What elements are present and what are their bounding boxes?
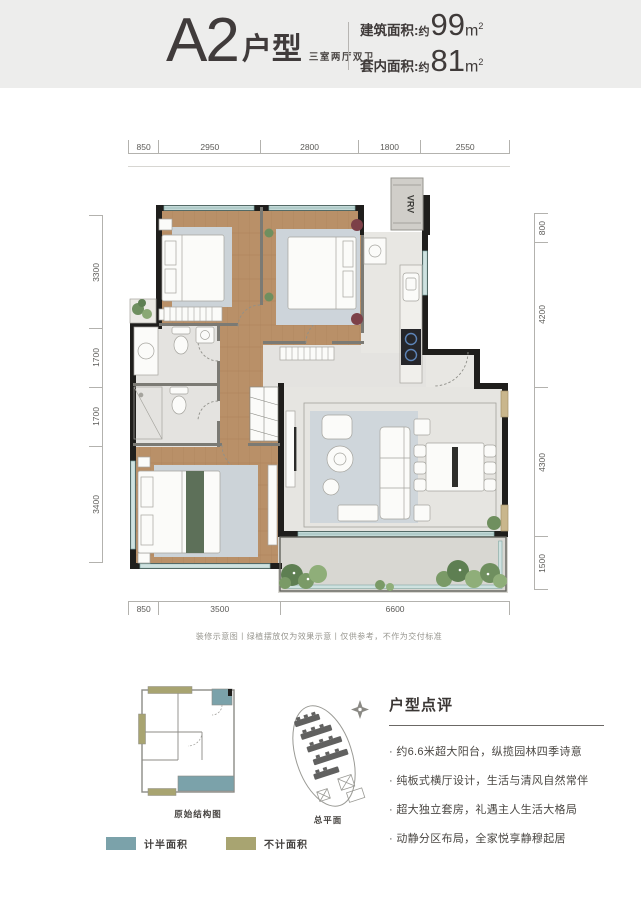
structural-diagram (106, 680, 290, 804)
review-bullets: · 约6.6米超大阳台，纵揽园林四季诗意 · 纯板式横厅设计，生活与清风自然常伴… (389, 738, 604, 854)
dim-label: 4200 (537, 305, 547, 324)
master-furniture (138, 457, 277, 563)
dim-label: 3300 (91, 263, 101, 282)
floorplan-page: A2 户型 三室两厅双卫 建筑面积: 约 99 m2 套内面积: 约 81 m2… (0, 0, 641, 920)
master-tv-console (268, 465, 277, 545)
excluded-area-left (139, 714, 146, 744)
vrv-closet: VRV (391, 178, 423, 230)
excluded-area-label: 不计面积 (264, 836, 308, 851)
master-side-window (131, 461, 135, 549)
flower-box-right-top (501, 391, 508, 417)
dim-label: 2800 (261, 142, 357, 152)
site-plan-label: 总平面 (276, 814, 380, 826)
dim-label: 2550 (421, 142, 509, 152)
dim-label: 1500 (537, 554, 547, 573)
dim-label: 1700 (91, 407, 101, 426)
built-area-row: 建筑面积: 约 99 m2 (360, 9, 483, 45)
coffee-table (327, 446, 353, 472)
dim-label: 800 (537, 221, 547, 235)
toilet-2 (172, 396, 186, 414)
built-area-label: 建筑面积: (360, 19, 419, 39)
dim-label: 850 (129, 142, 158, 152)
inner-area-row: 套内面积: 约 81 m2 (360, 45, 483, 81)
bedroom-2-furniture (265, 219, 364, 325)
dims-bottom: 850 3500 6600 (128, 601, 510, 615)
tv-console (286, 411, 295, 487)
review-bullet: · 动静分区布局，全家悦享静穆起居 (389, 825, 604, 854)
side-planter (130, 299, 156, 323)
disclaimer-text: 装修示意图丨绿植摆放仅为效果示意丨仅供参考，不作为交付标准 (78, 631, 560, 642)
dim-label: 1700 (91, 348, 101, 367)
inner-area-unit: m2 (465, 57, 483, 76)
half-area-balcony (178, 776, 234, 791)
legend-excluded-area: 不计面积 (226, 836, 308, 851)
plan-title: A2 户型 三室两厅双卫 (166, 12, 375, 69)
bench (338, 505, 378, 521)
fridge (364, 238, 386, 264)
legend: 计半面积 不计面积 (106, 836, 346, 851)
site-plan (276, 694, 380, 812)
armchair (322, 415, 352, 439)
inner-area-label: 套内面积: (360, 55, 419, 75)
dim-label: 1800 (359, 142, 421, 152)
dim-label: 2950 (159, 142, 260, 152)
kitchen-window (423, 251, 427, 295)
stove (401, 329, 421, 365)
compass-icon (351, 700, 369, 719)
sink-1 (196, 327, 214, 343)
floorplan-drawing: VRV (128, 175, 510, 595)
toilet-1 (174, 336, 188, 354)
plan-code-suffix: 户型 (242, 35, 302, 69)
excluded-area-top (148, 687, 192, 694)
dim-label: 3400 (91, 495, 101, 514)
wardrobe (250, 387, 278, 441)
built-area-approx: 约 (419, 23, 430, 39)
dim-label: 6600 (281, 604, 509, 614)
dims-top: 850 2950 2800 1800 2550 (128, 140, 510, 154)
sofa (380, 427, 410, 519)
review-section: 户型点评 · 约6.6米超大阳台，纵揽园林四季诗意 · 纯板式横厅设计，生活与清… (389, 694, 604, 854)
half-area-label: 计半面积 (144, 836, 188, 851)
half-area-swatch (106, 837, 136, 850)
entry-floor (426, 353, 480, 390)
dim-label: 3500 (159, 604, 280, 614)
inner-area-approx: 约 (419, 59, 430, 75)
structure-wall-mark (228, 689, 232, 696)
hall-cabinet (280, 347, 334, 360)
vrv-label: VRV (406, 195, 416, 213)
review-title: 户型点评 (389, 694, 604, 726)
dim-extension-line (128, 166, 510, 167)
excluded-area-bottom (148, 789, 176, 796)
area-info: 建筑面积: 约 99 m2 套内面积: 约 81 m2 (360, 9, 483, 81)
tv (294, 427, 296, 471)
master-bottom-window (140, 564, 270, 568)
built-area-unit: m2 (465, 21, 483, 40)
review-bullet: · 纯板式横厅设计，生活与清风自然常伴 (389, 767, 604, 796)
plan-code: A2 (166, 12, 238, 69)
review-bullet: · 超大独立套房，礼遇主人生活大格局 (389, 796, 604, 825)
excluded-area-swatch (226, 837, 256, 850)
dim-label: 4300 (537, 453, 547, 472)
dims-right: 800 4200 4300 1500 (534, 213, 548, 590)
dim-label: 850 (129, 604, 158, 614)
flower-box-right-bottom (501, 505, 508, 531)
review-bullet: · 约6.6米超大阳台，纵揽园林四季诗意 (389, 738, 604, 767)
header: A2 户型 三室两厅双卫 建筑面积: 约 99 m2 套内面积: 约 81 m2 (0, 0, 641, 88)
site-boundary-group (281, 698, 366, 812)
built-area-value: 99 (431, 9, 465, 40)
header-divider (348, 22, 349, 70)
inner-area-value: 81 (431, 45, 465, 76)
structural-diagram-label: 原始结构图 (106, 808, 290, 820)
dims-left: 3300 1700 1700 3400 (89, 215, 103, 563)
legend-half-area: 计半面积 (106, 836, 188, 851)
washer (134, 327, 158, 375)
